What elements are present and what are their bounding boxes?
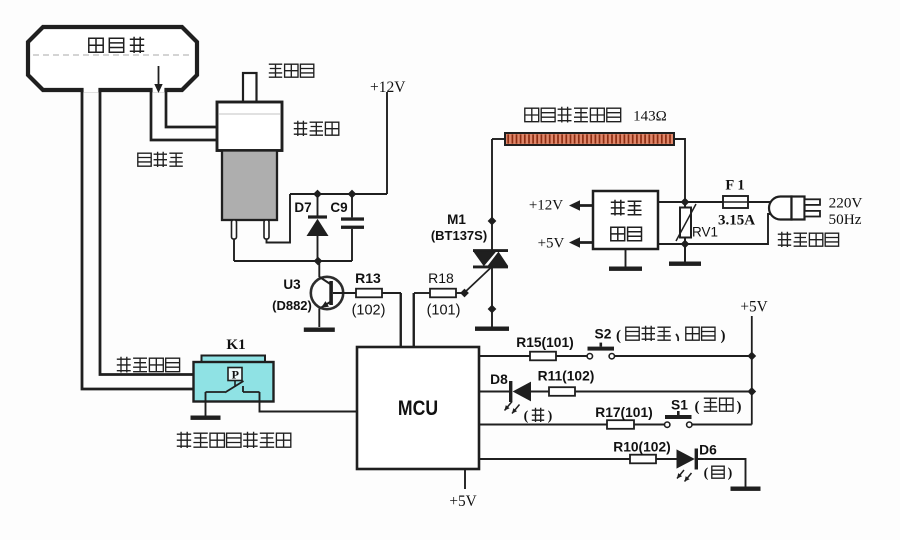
svg-text:+5V: +5V: [538, 236, 565, 252]
svg-text:3.15A: 3.15A: [718, 213, 755, 229]
svg-text:(BT137S): (BT137S): [431, 228, 487, 243]
svg-text:R10(102): R10(102): [613, 440, 671, 455]
svg-text:K1: K1: [226, 337, 245, 353]
svg-text:143Ω: 143Ω: [633, 109, 667, 125]
svg-text:D8: D8: [490, 372, 508, 387]
svg-text:R13: R13: [355, 270, 381, 286]
svg-text:(: (: [704, 466, 709, 481]
svg-text:R11(102): R11(102): [538, 369, 595, 384]
svg-text:(102): (102): [352, 303, 386, 319]
svg-text:): ): [548, 409, 553, 424]
svg-text:(: (: [695, 399, 700, 415]
svg-text:R18: R18: [428, 270, 454, 286]
svg-text:S2: S2: [595, 327, 612, 342]
svg-text:+5V: +5V: [740, 299, 767, 316]
svg-text:): ): [737, 399, 742, 415]
svg-text:M1: M1: [447, 212, 466, 227]
svg-text:50Hz: 50Hz: [829, 211, 862, 228]
svg-text:(: (: [616, 328, 621, 344]
svg-text:220V: 220V: [829, 195, 863, 212]
svg-text:): ): [721, 328, 726, 344]
svg-text:(101): (101): [427, 303, 461, 319]
svg-text:+12V: +12V: [370, 79, 406, 96]
svg-text:(D882): (D882): [272, 298, 312, 313]
svg-text:S1: S1: [671, 398, 688, 413]
svg-text:R17(101): R17(101): [595, 405, 653, 420]
svg-text:MCU: MCU: [398, 397, 438, 421]
svg-text:D6: D6: [699, 443, 717, 458]
svg-text:U3: U3: [283, 277, 301, 292]
svg-text:+5V: +5V: [449, 493, 476, 510]
svg-text:C9: C9: [330, 200, 347, 215]
svg-text:D7: D7: [294, 200, 311, 215]
svg-text:(: (: [524, 409, 529, 424]
svg-text:): ): [728, 466, 733, 481]
svg-text:RV1: RV1: [692, 225, 718, 240]
svg-text:F 1: F 1: [725, 178, 744, 194]
svg-text:P: P: [232, 368, 239, 382]
svg-text:R15(101): R15(101): [516, 335, 574, 350]
svg-text:+12V: +12V: [529, 198, 563, 214]
